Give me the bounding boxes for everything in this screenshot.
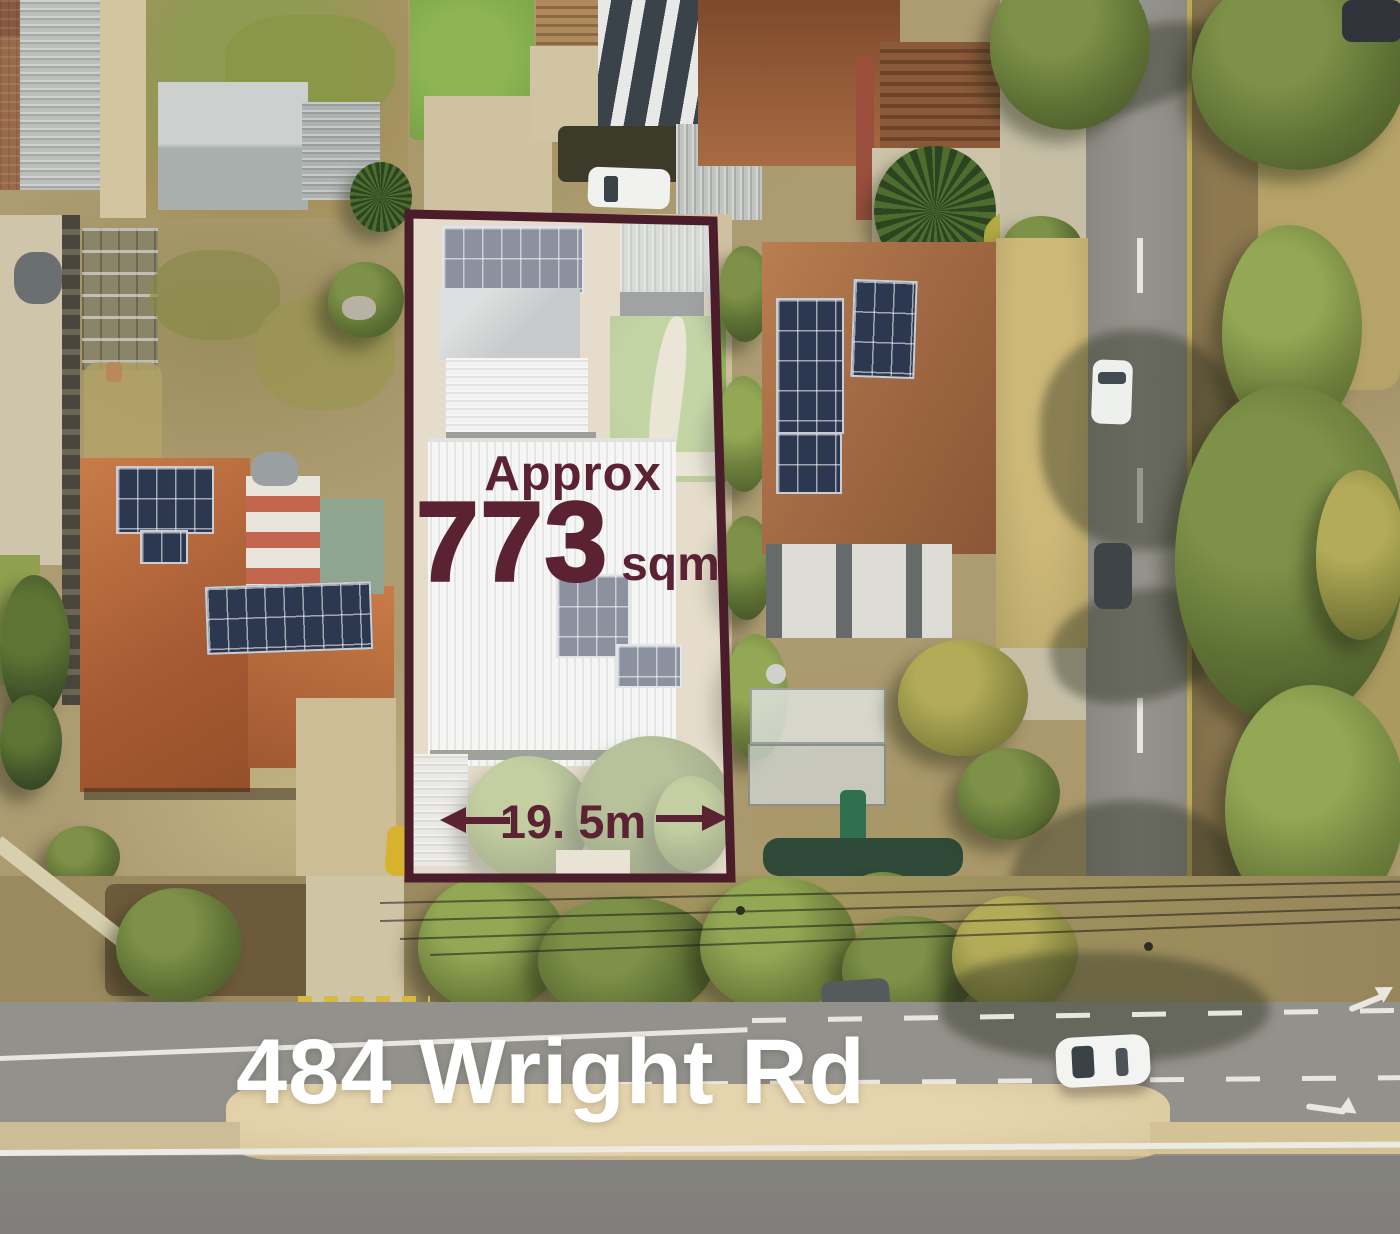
area-value-row: 773 sqm: [388, 486, 748, 598]
aerial-photo: Approx 773 sqm 19. 5m 484 Wright Rd: [0, 0, 1400, 1234]
area-value: 773: [416, 486, 609, 598]
address-label: 484 Wright Rd: [236, 1020, 866, 1125]
right-arrow-shaft: [656, 815, 704, 822]
right-arrow-icon: [702, 805, 728, 831]
area-unit: sqm: [621, 537, 720, 592]
frontage-label: 19. 5m: [478, 794, 668, 849]
